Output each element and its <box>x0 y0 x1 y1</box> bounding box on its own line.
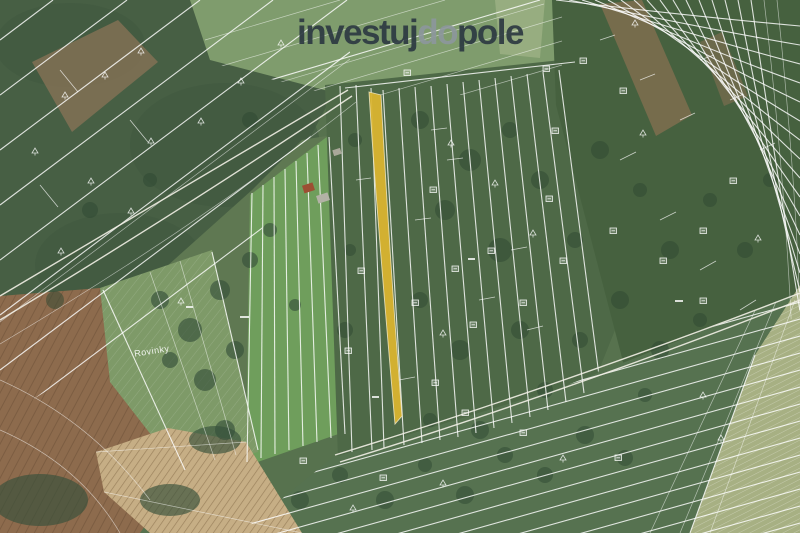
logo-text-pole: pole <box>457 15 523 50</box>
investujdopole-logo: investujdopole <box>297 10 523 54</box>
logo-text-do: do <box>417 15 457 50</box>
satellite-map <box>0 0 800 533</box>
terrain-patches <box>0 0 800 533</box>
map-viewport[interactable]: investujdopole Rovinky <box>0 0 800 533</box>
logo-text-investuj: investuj <box>297 15 417 50</box>
